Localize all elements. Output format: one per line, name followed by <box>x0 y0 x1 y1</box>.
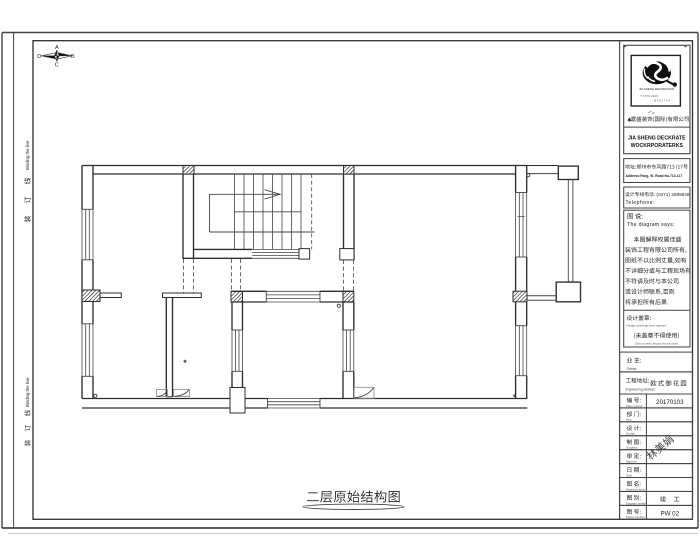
svg-text:(0371) 2689648: (0371) 2689648 <box>656 192 689 197</box>
svg-text:A: A <box>55 45 59 51</box>
svg-text:Engineering address:: Engineering address: <box>626 388 656 392</box>
svg-text:Plan number.: Plan number. <box>626 404 643 408</box>
svg-text:Design drawings then stamps.: Design drawings then stamps. <box>627 324 667 328</box>
svg-text:JIA SHENG DECORATION: JIA SHENG DECORATION <box>639 87 674 91</box>
svg-text:20170103: 20170103 <box>656 399 684 406</box>
svg-text:Figure number.: Figure number. <box>626 515 646 519</box>
svg-text:The diagram says:: The diagram says: <box>627 222 675 228</box>
svg-text:JIA SHENG DECKRATE: JIA SHENG DECKRATE <box>628 136 686 142</box>
svg-text:Binding the line: Binding the line <box>25 140 30 170</box>
svg-text:Drawing name.: Drawing name. <box>626 487 646 491</box>
svg-text:Binding the line: Binding the line <box>25 377 30 407</box>
svg-text:Did not seal, should not be us: Did not seal, should not be used <box>635 342 678 346</box>
svg-text:C: C <box>55 63 59 69</box>
svg-text:Y.Y.OYI 2F16: Y.Y.OYI 2F16 <box>640 94 658 98</box>
svg-text:Approve.: Approve. <box>626 459 638 463</box>
svg-text:B: B <box>71 54 75 60</box>
svg-text:Design.: Design. <box>626 432 636 436</box>
svg-text:Dep.: Dep. <box>626 418 632 422</box>
svg-text:Telephone:: Telephone: <box>626 200 655 206</box>
svg-text:PW 02: PW 02 <box>661 510 680 517</box>
svg-text:WOCKRPORATERKS: WOCKRPORATERKS <box>631 143 684 149</box>
svg-text:Graphics.: Graphics. <box>626 446 639 450</box>
svg-text:Address:Fang, W. Road No.713-1: Address:Fang, W. Road No.713-117 <box>626 174 683 178</box>
svg-text:Date.: Date. <box>626 473 633 477</box>
svg-text:Diagram drawin.: Diagram drawin. <box>626 501 647 505</box>
svg-text:Owner:: Owner: <box>627 367 638 371</box>
svg-text:D: D <box>37 54 41 60</box>
svg-text:B 4 5 2 7 1 4: B 4 5 2 7 1 4 <box>654 99 670 103</box>
